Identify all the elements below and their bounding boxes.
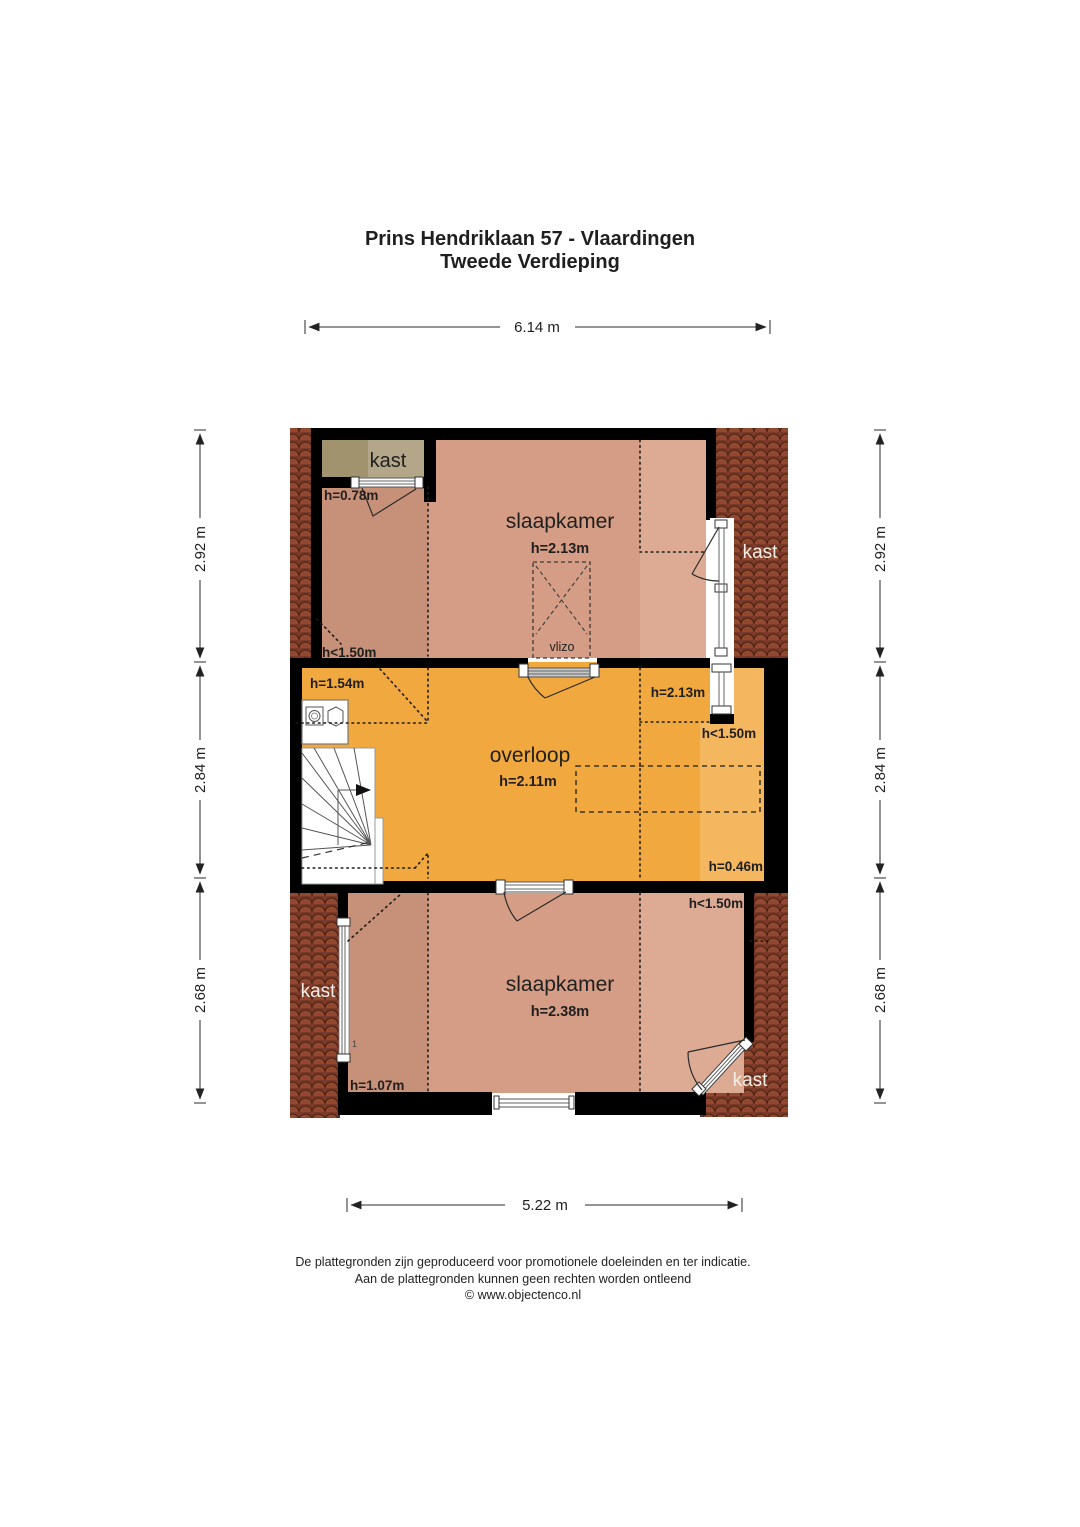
landing-height: h=2.11m xyxy=(499,774,557,790)
footer-line1: De plattegronden zijn geproduceerd voor … xyxy=(295,1255,750,1269)
bedroom-bottom-low-zone xyxy=(348,893,428,1093)
stair-count-mark: 1 xyxy=(352,1039,357,1049)
dimension-left-3: 2.68 m xyxy=(192,967,209,1013)
bedroom-top-low-zone xyxy=(322,487,428,658)
page-title: Prins Hendriklaan 57 - Vlaardingen Tweed… xyxy=(365,228,695,273)
staircase xyxy=(302,748,383,884)
dimension-left-2: 2.84 m xyxy=(192,747,209,793)
dimension-right-3: 2.68 m xyxy=(872,967,889,1013)
bedroom-top-height: h=2.13m xyxy=(531,541,589,557)
attic-hatch-label: vlizo xyxy=(549,640,574,654)
bedroom-top-low-label: h<1.50m xyxy=(322,645,376,660)
washer-closet xyxy=(302,700,348,744)
dimension-right-1: 2.92 m xyxy=(872,526,889,572)
landing-right-height: h=2.13m xyxy=(651,685,705,700)
bedroom-bottom-name: slaapkamer xyxy=(506,973,615,996)
dimension-left-1: 2.92 m xyxy=(192,526,209,572)
dimension-right: 2.92 m 2.84 m 2.68 m xyxy=(872,430,889,1103)
dimension-left: 2.92 m 2.84 m 2.68 m xyxy=(192,430,209,1103)
title-line2: Tweede Verdieping xyxy=(440,251,620,273)
dimension-bottom: 5.22 m xyxy=(347,1197,742,1214)
footer-line2: Aan de plattegronden kunnen geen rechten… xyxy=(355,1272,691,1286)
bedroom-bottom-left-height: h=1.07m xyxy=(350,1078,404,1093)
closet-bottom-left-label: kast xyxy=(301,981,337,1002)
bedroom-top-name: slaapkamer xyxy=(506,510,615,533)
floorplan-page: Prins Hendriklaan 57 - Vlaardingen Tweed… xyxy=(0,0,1080,1527)
title-line1: Prins Hendriklaan 57 - Vlaardingen xyxy=(365,228,695,250)
closet-bottom-right-label: kast xyxy=(733,1070,769,1091)
landing-right-low-label: h<1.50m xyxy=(702,726,756,741)
closet-top-left-height: h=0.78m xyxy=(324,488,378,503)
footer-disclaimer: De plattegronden zijn geproduceerd voor … xyxy=(295,1255,750,1302)
dimension-bottom-label: 5.22 m xyxy=(522,1197,568,1214)
bedroom-bottom-height: h=2.38m xyxy=(531,1004,589,1020)
window-bedroom-bottom xyxy=(492,1094,575,1113)
landing-light-zone2 xyxy=(734,668,764,722)
dimension-right-2: 2.84 m xyxy=(872,747,889,793)
landing-left-height: h=1.54m xyxy=(310,676,364,691)
closet-top-left-label: kast xyxy=(370,450,407,472)
bedroom-bottom-low-label: h<1.50m xyxy=(689,896,743,911)
closet-top-right-label: kast xyxy=(743,542,779,563)
bedroom-top-light-zone xyxy=(640,440,706,658)
dimension-top-label: 6.14 m xyxy=(514,319,560,336)
closet-top-left-floor-dark xyxy=(322,440,368,477)
roof-top-left xyxy=(290,428,312,658)
floorplan-canvas: Prins Hendriklaan 57 - Vlaardingen Tweed… xyxy=(0,0,1080,1527)
door-closet-bottom-left xyxy=(337,918,350,1062)
landing-light-zone xyxy=(700,722,764,881)
dimension-top: 6.14 m xyxy=(305,319,770,336)
landing-name: overloop xyxy=(490,744,571,767)
landing-bottom-right-height: h=0.46m xyxy=(709,859,763,874)
footer-copyright: © www.objectenco.nl xyxy=(465,1288,581,1302)
roof-bottom-left xyxy=(290,886,340,1118)
